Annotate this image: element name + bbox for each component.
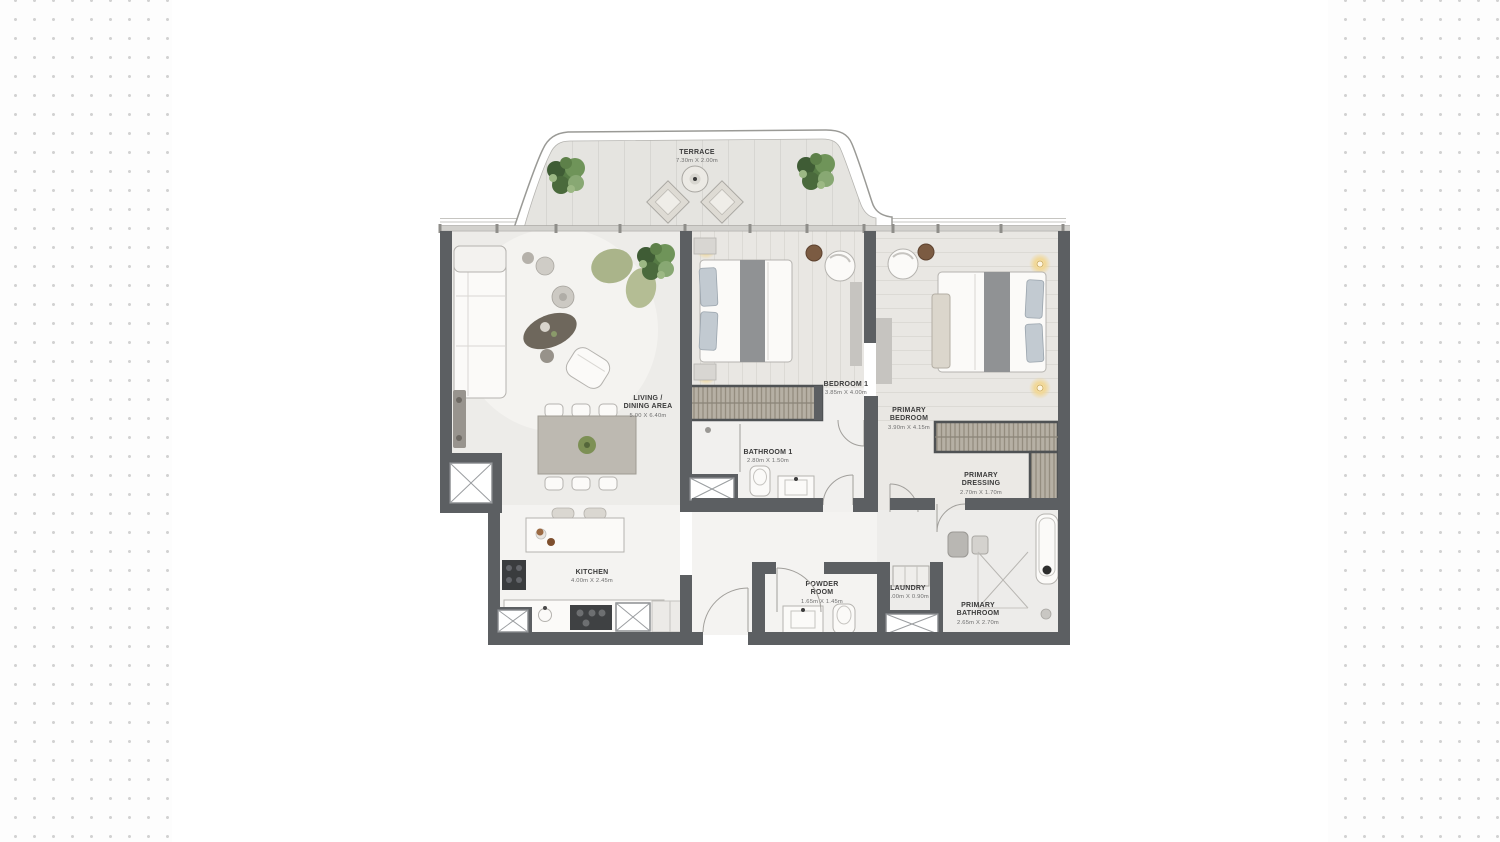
bar-stool: [552, 508, 574, 519]
wall: [890, 498, 935, 510]
sofa: [454, 246, 506, 398]
side-table: [522, 252, 534, 264]
powder-dimensions: 1.65m X 1.45m: [801, 599, 843, 605]
primary-bathroom-dimensions: 2.65m X 2.70m: [957, 620, 999, 626]
faucet: [794, 477, 798, 481]
wall: [930, 562, 943, 614]
terrace-table-center: [693, 177, 697, 181]
page-background: { "page": { "background_dot_color": "#d2…: [0, 0, 1500, 842]
toilet: [833, 604, 855, 634]
wall: [864, 396, 878, 512]
cooktop-cabinet: [502, 560, 526, 590]
wall: [440, 231, 452, 457]
wall: [748, 632, 1070, 645]
side-table: [806, 245, 822, 261]
dining-chair: [545, 404, 563, 417]
round-table-center: [559, 293, 567, 301]
wall: [680, 632, 703, 645]
bidet: [972, 536, 988, 554]
pouf: [540, 349, 554, 363]
plant: [637, 243, 675, 280]
primary-bedroom-label-1: PRIMARY: [892, 407, 926, 414]
nightstand-lamp: [1037, 261, 1043, 267]
breakfast-item: [537, 529, 544, 536]
laundry-label: LAUNDRY: [890, 585, 926, 592]
faucet: [543, 606, 547, 610]
burner: [506, 565, 512, 571]
bathtub: [1036, 514, 1058, 584]
floor-plan-svg: TERRACE 7.30m X 2.00m: [438, 110, 1072, 647]
pillow: [699, 268, 718, 307]
primary-bedroom-dimensions: 3.90m X 4.15m: [888, 425, 930, 431]
pillow: [1025, 324, 1044, 363]
powder-label-2: ROOM: [811, 589, 834, 596]
side-table: [918, 244, 934, 260]
breakfast-item: [547, 538, 555, 546]
primary-bathroom-label-2: BATHROOM: [957, 610, 1000, 617]
dressing-label-1: PRIMARY: [964, 472, 998, 479]
bed: [932, 272, 1046, 372]
dining-chair: [599, 477, 617, 490]
armchair: [825, 251, 855, 281]
primary-bedroom-label-2: BEDROOM: [890, 415, 928, 422]
bedroom1-label: BEDROOM 1: [824, 381, 869, 388]
pillow: [1025, 280, 1044, 319]
burner: [506, 577, 512, 583]
burner: [599, 610, 606, 617]
dressing-dimensions: 2.70m X 1.70m: [960, 490, 1002, 496]
burner: [577, 610, 584, 617]
living-label-2: DINING AREA: [624, 403, 673, 410]
primary-bathroom-label-1: PRIMARY: [961, 602, 995, 609]
console-item: [456, 397, 462, 403]
kitchen-dimensions: 4.00m X 2.45m: [571, 578, 613, 584]
wall: [864, 231, 876, 343]
terrace-dimensions: 7.30m X 2.00m: [676, 158, 718, 164]
terrace-label: TERRACE: [679, 149, 715, 156]
bed: [699, 260, 792, 362]
coffee-table-tray: [540, 322, 550, 332]
bed-runner: [740, 260, 765, 362]
console-item: [456, 435, 462, 441]
terrace: TERRACE 7.30m X 2.00m: [514, 130, 892, 228]
bathroom1-dimensions: 2.80m X 1.50m: [747, 458, 789, 464]
living-dimensions: 5.00 X 6.40m: [630, 413, 667, 419]
bed-runner: [984, 272, 1010, 372]
dining-chair: [545, 477, 563, 490]
sink-vanity: [783, 606, 823, 633]
terrace-plant-icon: [797, 153, 835, 190]
table-centerpiece-center: [584, 442, 590, 448]
wall: [1058, 231, 1070, 645]
faucet: [801, 608, 805, 612]
nightstand: [694, 364, 716, 380]
burner: [516, 577, 522, 583]
powder-label-1: POWDER: [806, 581, 839, 588]
burner: [583, 620, 590, 627]
nightstand: [694, 238, 716, 254]
dressing-label-2: DRESSING: [962, 480, 1001, 487]
pillow: [699, 312, 718, 351]
wall: [853, 498, 864, 512]
washing-machine: [893, 566, 929, 586]
bathroom1-label: BATHROOM 1: [743, 449, 792, 456]
wall: [824, 562, 877, 574]
closet: [690, 386, 822, 420]
living-label-1: LIVING /: [633, 395, 662, 402]
stove: [570, 605, 612, 630]
toilet: [750, 466, 770, 496]
burner: [589, 610, 596, 617]
laundry-dimensions: 1.00m X 0.90m: [887, 594, 929, 600]
sink-vanity: [778, 476, 814, 499]
bed-bench: [932, 294, 950, 368]
stool: [1041, 609, 1051, 619]
floor-plan: TERRACE 7.30m X 2.00m: [438, 110, 1072, 647]
wall: [680, 231, 692, 512]
dining-chair: [599, 404, 617, 417]
bar-stool: [584, 508, 606, 519]
dining-chair: [572, 404, 590, 417]
toilet: [948, 532, 968, 557]
coffee-table-plant: [551, 331, 557, 337]
terrace-plant-icon: [547, 157, 585, 194]
burner: [516, 565, 522, 571]
shower-head: [705, 427, 711, 433]
drain: [1043, 566, 1052, 575]
laundry: LAUNDRY 1.00m X 0.90m: [887, 566, 929, 600]
tv-console: [850, 282, 862, 366]
nightstand-lamp: [1037, 385, 1043, 391]
kitchen-label: KITCHEN: [576, 569, 609, 576]
armchair: [888, 249, 918, 279]
dining-chair: [572, 477, 590, 490]
wall: [965, 498, 1058, 510]
bedroom1-dimensions: 3.85m X 4.00m: [825, 390, 867, 396]
wardrobe: [876, 318, 892, 384]
side-table: [536, 257, 554, 275]
wall: [692, 498, 823, 512]
wall: [752, 562, 776, 574]
